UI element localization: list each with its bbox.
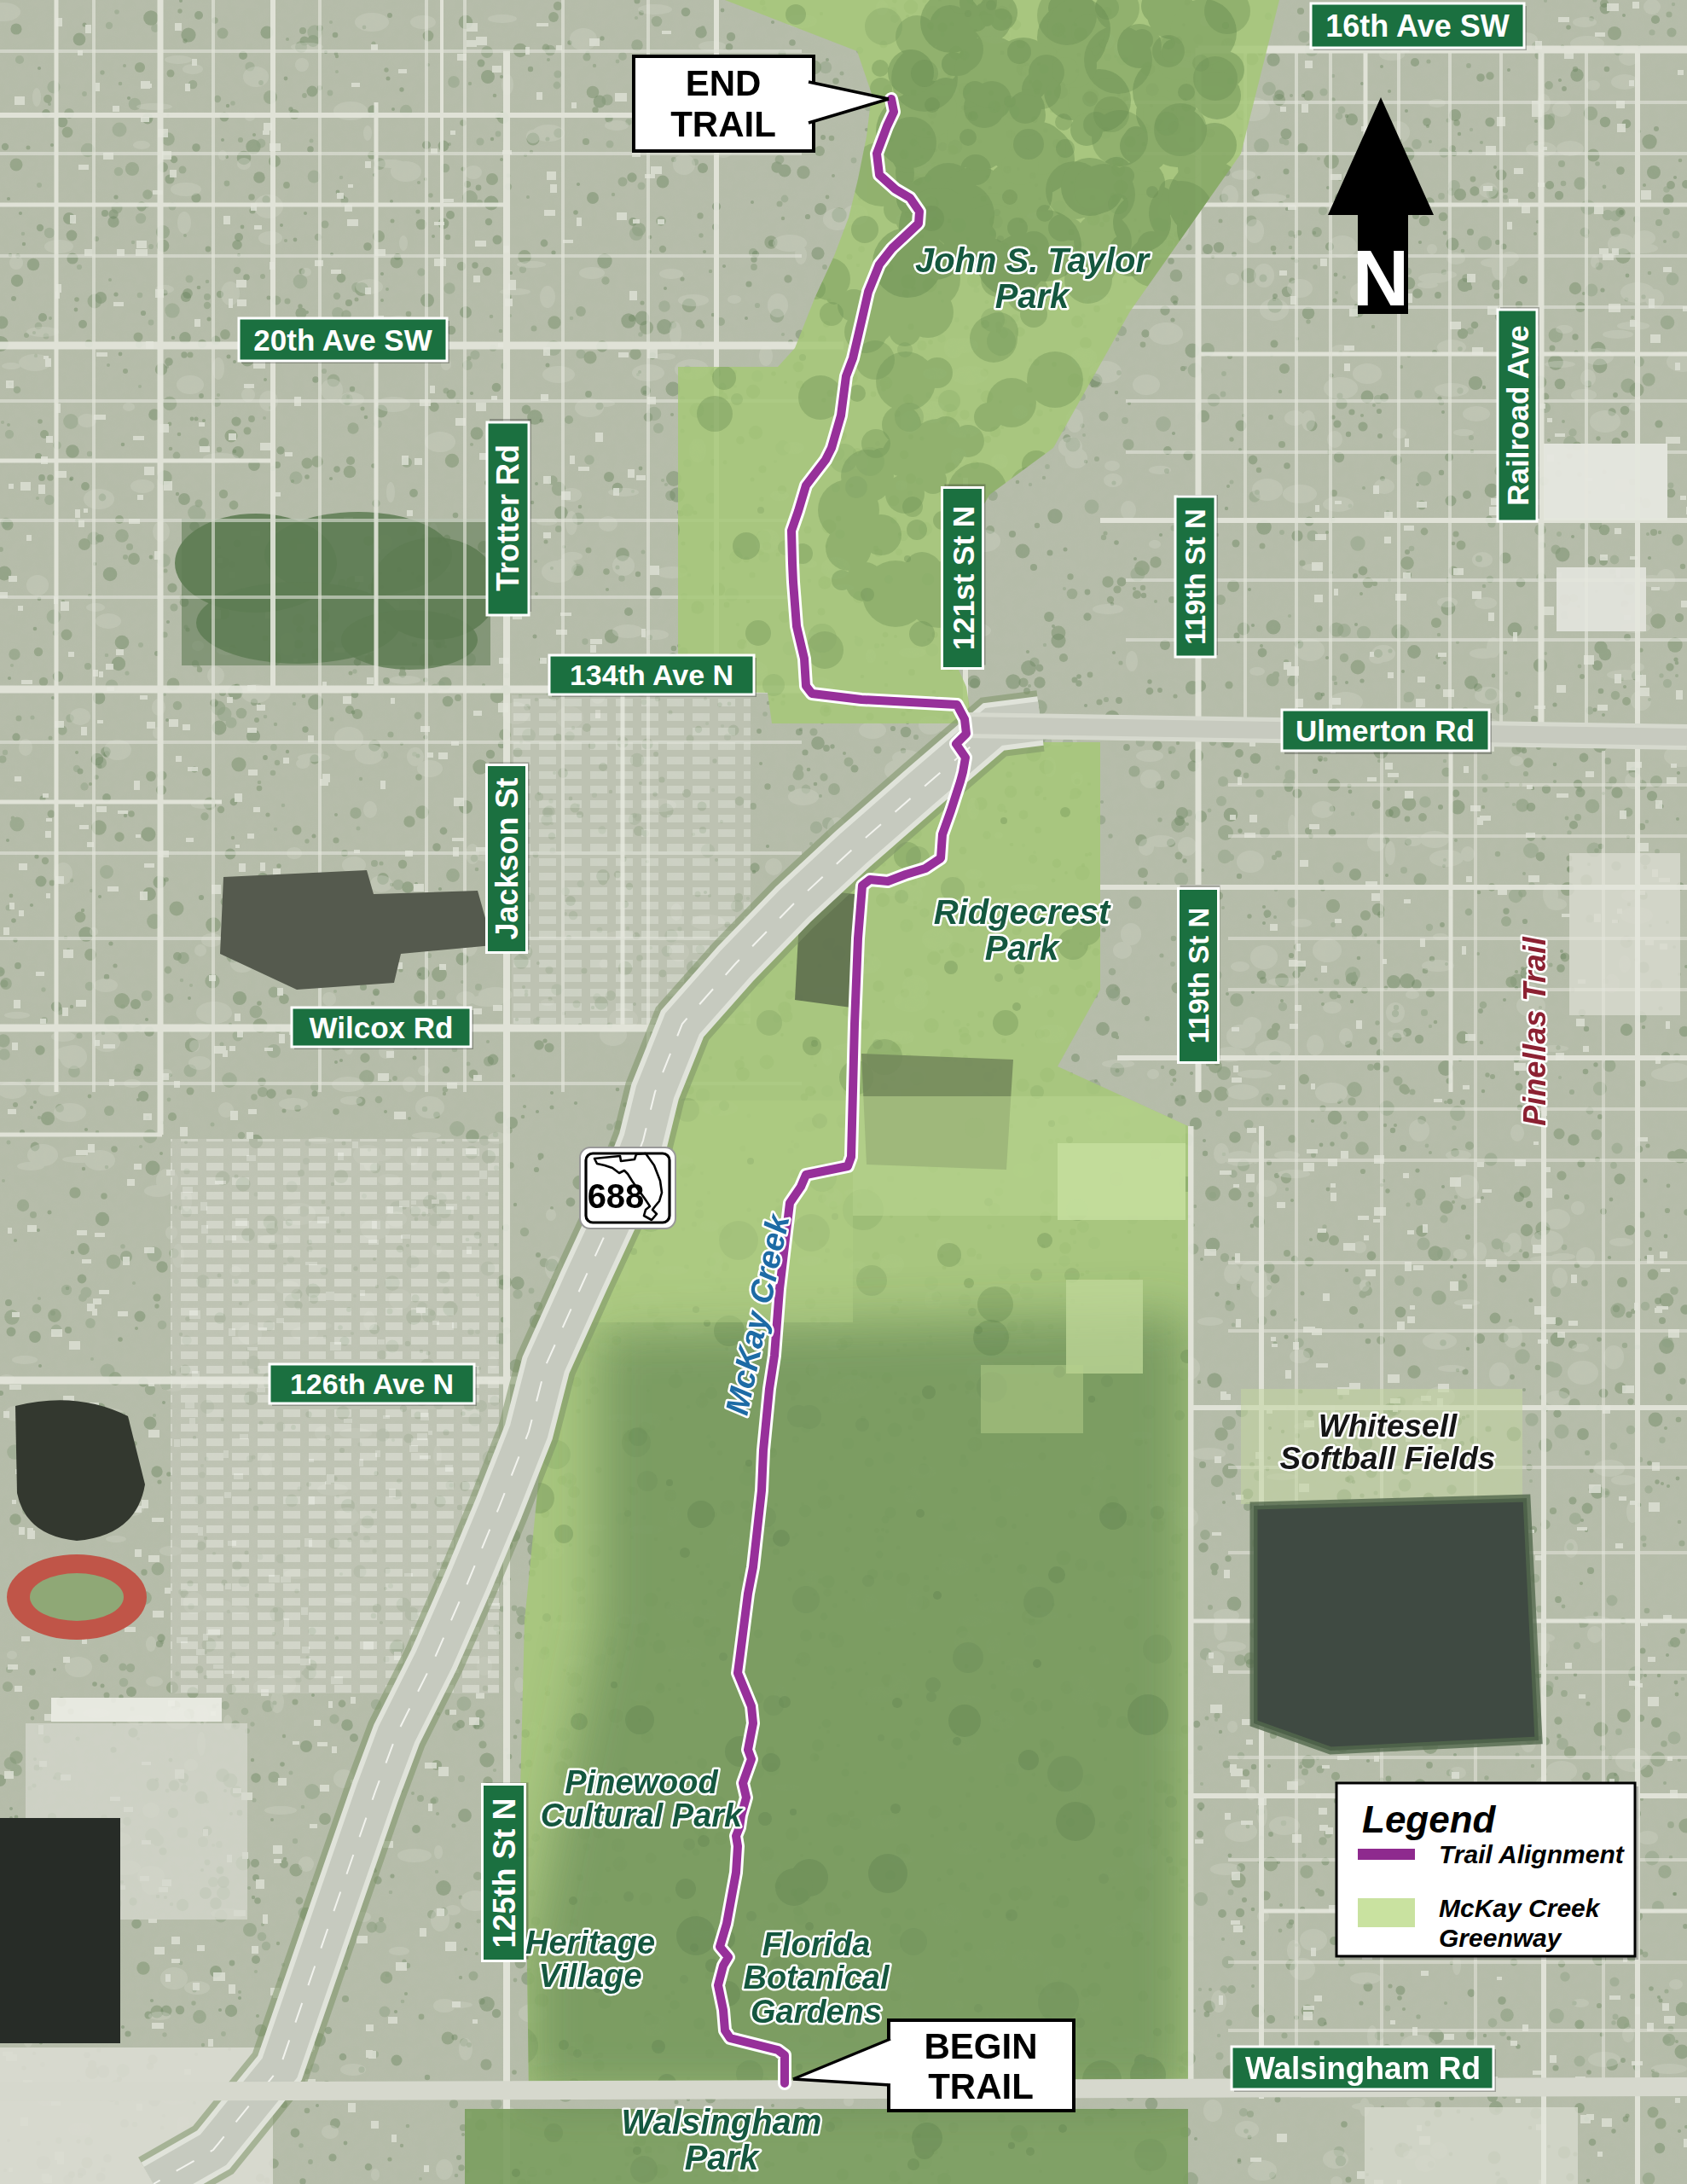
svg-text:Legend: Legend xyxy=(1362,1798,1497,1840)
svg-text:Botanical: Botanical xyxy=(743,1960,890,1995)
svg-text:Softball Fields: Softball Fields xyxy=(1280,1441,1496,1476)
svg-text:N: N xyxy=(1353,235,1409,322)
svg-text:END: END xyxy=(686,63,762,103)
svg-text:Ulmerton Rd: Ulmerton Rd xyxy=(1296,714,1475,747)
svg-text:Park: Park xyxy=(985,929,1060,967)
svg-text:Greenway: Greenway xyxy=(1439,1924,1562,1952)
svg-text:Heritage: Heritage xyxy=(525,1925,655,1960)
svg-text:134th Ave N: 134th Ave N xyxy=(570,659,733,691)
svg-text:Ridgecrest: Ridgecrest xyxy=(934,893,1111,931)
svg-text:McKay Creek: McKay Creek xyxy=(1439,1894,1601,1922)
svg-text:20th Ave SW: 20th Ave SW xyxy=(253,323,432,357)
svg-text:Trail Alignment: Trail Alignment xyxy=(1439,1840,1626,1868)
svg-text:Cultural Park: Cultural Park xyxy=(541,1798,744,1833)
svg-text:Wilcox Rd: Wilcox Rd xyxy=(310,1011,454,1044)
svg-text:Pinewood: Pinewood xyxy=(565,1764,718,1800)
svg-text:Whitesell: Whitesell xyxy=(1319,1409,1458,1443)
svg-text:TRAIL: TRAIL xyxy=(928,2066,1034,2106)
svg-text:119th St N: 119th St N xyxy=(1180,508,1211,645)
svg-text:Trotter Rd: Trotter Rd xyxy=(490,444,525,591)
svg-text:126th Ave N: 126th Ave N xyxy=(290,1368,454,1400)
svg-text:Park: Park xyxy=(685,2139,760,2176)
svg-text:125th St N: 125th St N xyxy=(487,1798,522,1948)
svg-text:Jackson St: Jackson St xyxy=(490,777,525,939)
svg-text:Village: Village xyxy=(538,1958,641,1994)
svg-text:BEGIN: BEGIN xyxy=(924,2026,1037,2066)
svg-text:Florida: Florida xyxy=(762,1926,871,1962)
svg-text:Walsingham: Walsingham xyxy=(622,2103,822,2140)
svg-text:119th St N: 119th St N xyxy=(1183,908,1215,1044)
svg-text:TRAIL: TRAIL xyxy=(670,104,776,144)
svg-text:Railroad Ave: Railroad Ave xyxy=(1501,325,1534,505)
svg-text:John S. Taylor: John S. Taylor xyxy=(915,241,1151,279)
svg-text:Gardens: Gardens xyxy=(751,1994,882,2030)
svg-text:688: 688 xyxy=(588,1177,645,1215)
svg-text:Park: Park xyxy=(995,277,1070,315)
svg-text:Walsingham Rd: Walsingham Rd xyxy=(1245,2051,1481,2086)
svg-text:Pinellas Trail: Pinellas Trail xyxy=(1517,936,1552,1125)
svg-text:16th Ave SW: 16th Ave SW xyxy=(1325,9,1509,44)
svg-text:121st St N: 121st St N xyxy=(947,506,980,650)
